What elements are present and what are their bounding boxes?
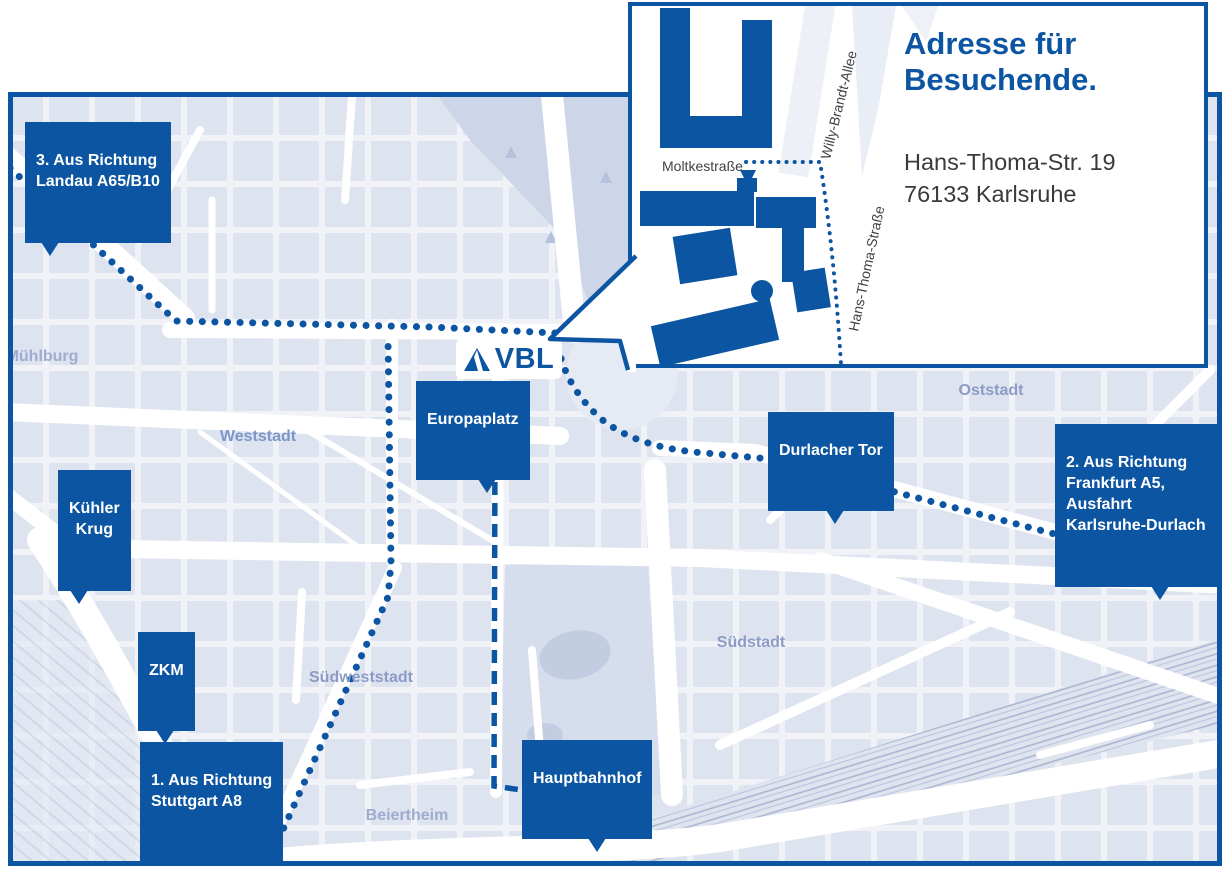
district-label-suedstadt: Südstadt [717, 634, 785, 652]
callout-europaplatz-text: Europaplatz [427, 409, 519, 430]
callout-durlacher-tor-text: Durlacher Tor [779, 440, 883, 461]
callout-pointer [826, 510, 844, 524]
callout-from-landau-text: 3. Aus Richtung Landau A65/B10 [36, 150, 160, 192]
callout-from-frankfurt-text: 2. Aus Richtung Frankfurt A5, Ausfahrt K… [1066, 452, 1206, 536]
callout-zkm: ZKM [138, 632, 195, 731]
callout-pointer [588, 838, 606, 852]
district-label-beiertheim: Beiertheim [366, 807, 449, 825]
inset-campus-buildings [640, 178, 831, 364]
callout-zkm-text: ZKM [149, 660, 184, 681]
callout-hauptbahnhof: Hauptbahnhof [522, 740, 652, 839]
vbl-directions-map: Siemensallee Kußmaulstraße Franz-Lust-St… [0, 0, 1230, 874]
vbl-logo: VBL [456, 339, 562, 379]
inset-address: Hans-Thoma-Str. 19 76133 Karlsruhe [904, 146, 1116, 211]
callout-from-landau: 3. Aus Richtung Landau A65/B10 [25, 122, 171, 243]
callout-pointer [1151, 586, 1169, 600]
inset-panel: Moltkestraße Willy-Brandt-Allee Hans-Tho… [628, 2, 1208, 368]
callout-from-frankfurt: 2. Aus Richtung Frankfurt A5, Ausfahrt K… [1055, 424, 1217, 587]
inset-street-label-hans-thoma-strasse: Hans-Thoma-Straße [845, 204, 887, 332]
callout-pointer [70, 590, 88, 604]
callout-kuehler-krug-text: Kühler Krug [69, 498, 120, 540]
callout-from-stuttgart: 1. Aus Richtung Stuttgart A8 [140, 742, 283, 861]
inset-h-building [660, 8, 772, 148]
vbl-triangle-icon [464, 347, 490, 372]
vbl-logo-text: VBL [495, 343, 555, 376]
callout-europaplatz: Europaplatz [416, 381, 530, 480]
callout-pointer [41, 242, 59, 256]
district-label-oststadt: Oststadt [959, 382, 1024, 400]
district-label-muehlburg: Mühlburg [13, 348, 78, 366]
inset-block [852, 6, 896, 176]
callout-pointer [478, 479, 496, 493]
callout-from-stuttgart-text: 1. Aus Richtung Stuttgart A8 [151, 770, 272, 812]
district-label-weststadt: Weststadt [220, 428, 296, 446]
callout-kuehler-krug: Kühler Krug [58, 470, 131, 591]
inset-heading: Adresse für Besuchende. [904, 26, 1097, 98]
district-label-suedweststadt: Südweststadt [309, 669, 413, 687]
callout-durlacher-tor: Durlacher Tor [768, 412, 894, 511]
inset-street-label-moltkestrasse: Moltkestraße [662, 158, 743, 174]
callout-hauptbahnhof-text: Hauptbahnhof [533, 768, 641, 789]
